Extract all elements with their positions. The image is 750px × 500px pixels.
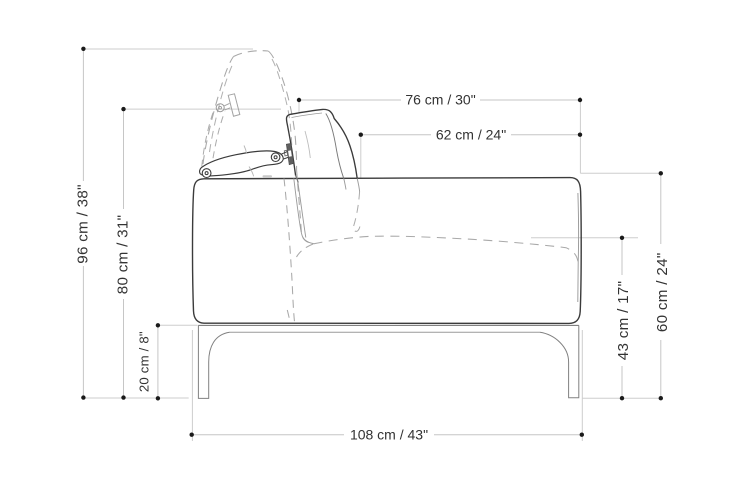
svg-text:62 cm / 24": 62 cm / 24" [436, 126, 506, 142]
svg-text:80 cm / 31": 80 cm / 31" [115, 215, 132, 295]
svg-text:20 cm / 8": 20 cm / 8" [137, 331, 152, 392]
svg-text:96 cm / 38": 96 cm / 38" [75, 184, 92, 264]
svg-text:76 cm / 30": 76 cm / 30" [405, 92, 475, 108]
svg-text:43 cm / 17": 43 cm / 17" [615, 281, 632, 361]
svg-text:108 cm / 43": 108 cm / 43" [350, 426, 428, 442]
svg-text:60 cm / 24": 60 cm / 24" [654, 252, 671, 332]
